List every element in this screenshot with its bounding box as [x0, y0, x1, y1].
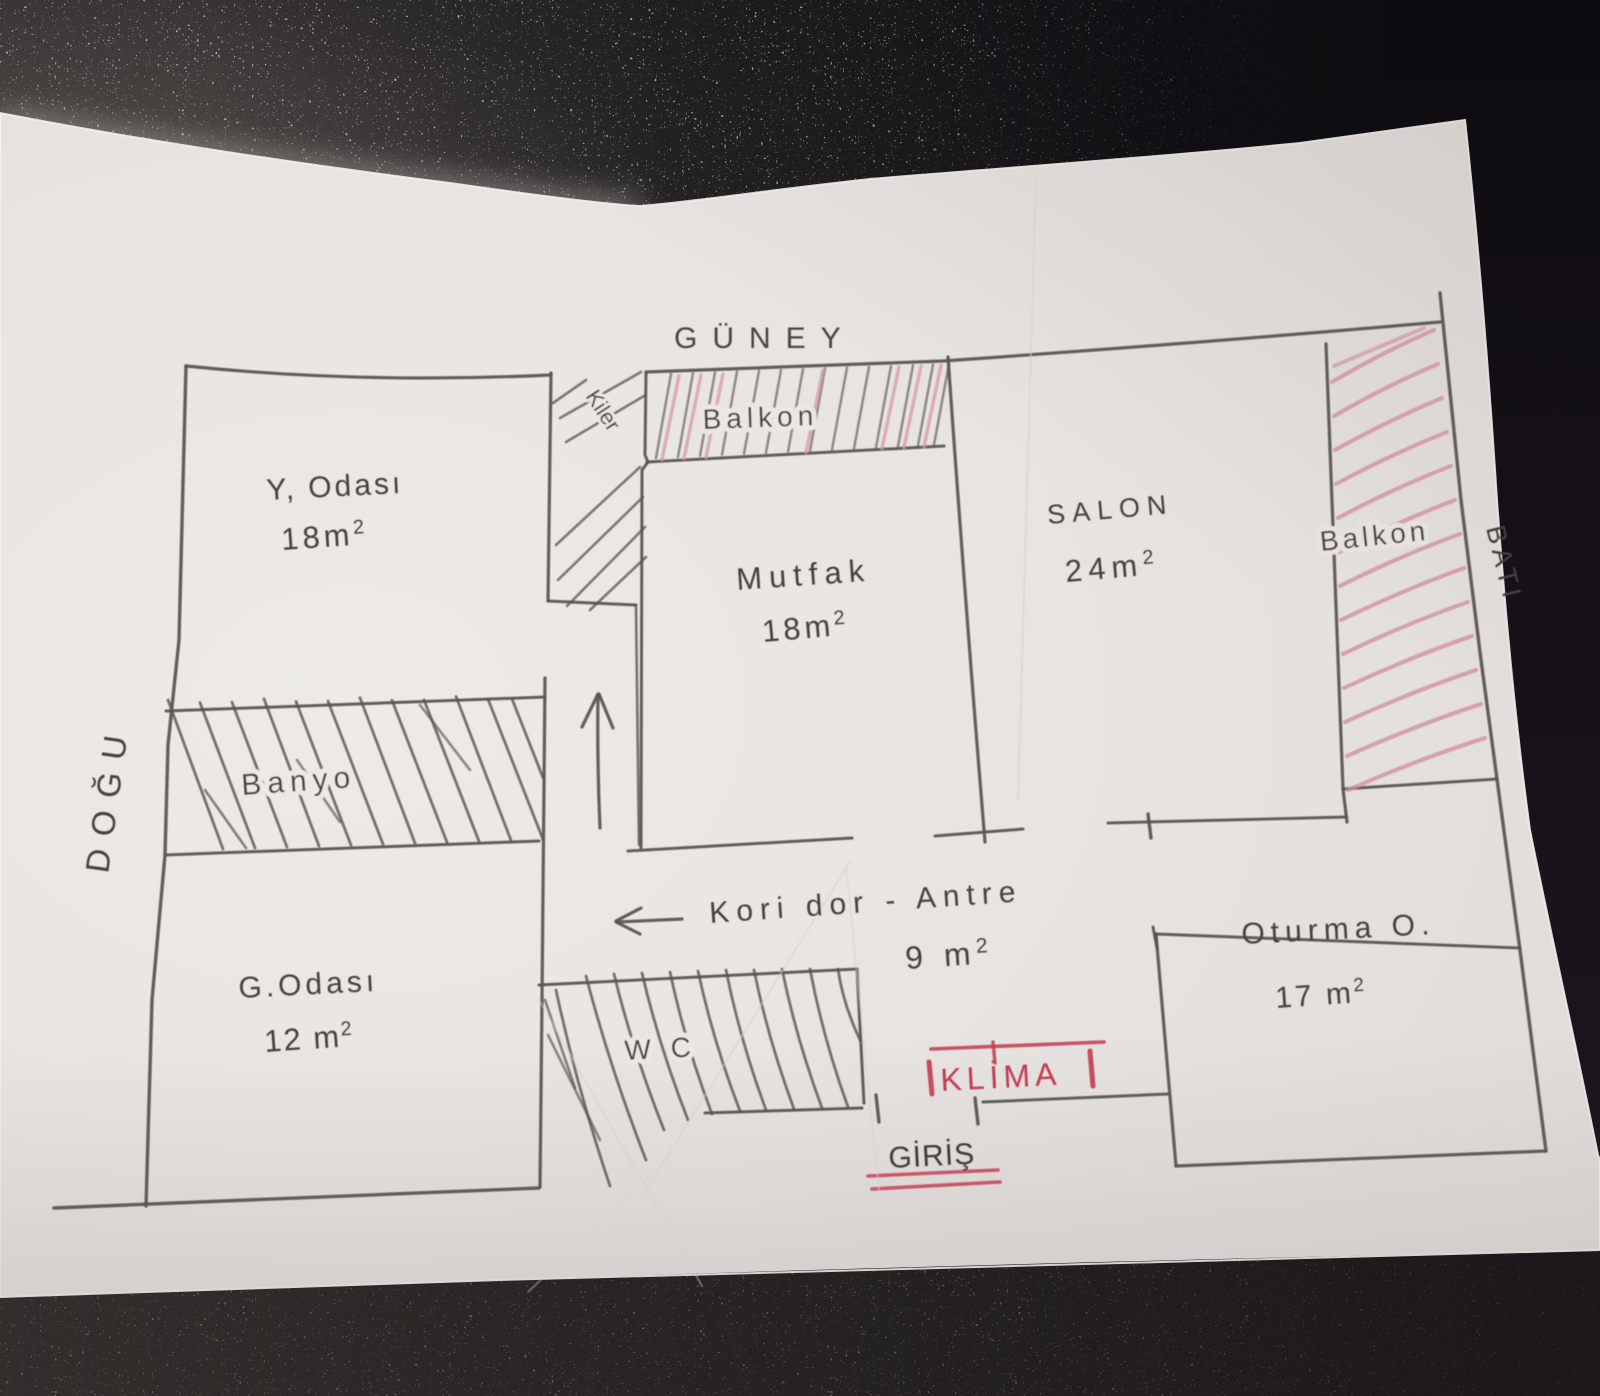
svg-text:GÜNEY: GÜNEY [674, 322, 856, 355]
svg-text:KLİMA: KLİMA [939, 1056, 1062, 1098]
svg-text:Balkon: Balkon [702, 400, 819, 435]
svg-text:12 m2: 12 m2 [263, 1018, 355, 1059]
svg-text:17 m2: 17 m2 [1274, 975, 1368, 1015]
svg-text:W C: W C [624, 1031, 698, 1066]
svg-text:GİRİŞ: GİRİŞ [888, 1137, 976, 1174]
